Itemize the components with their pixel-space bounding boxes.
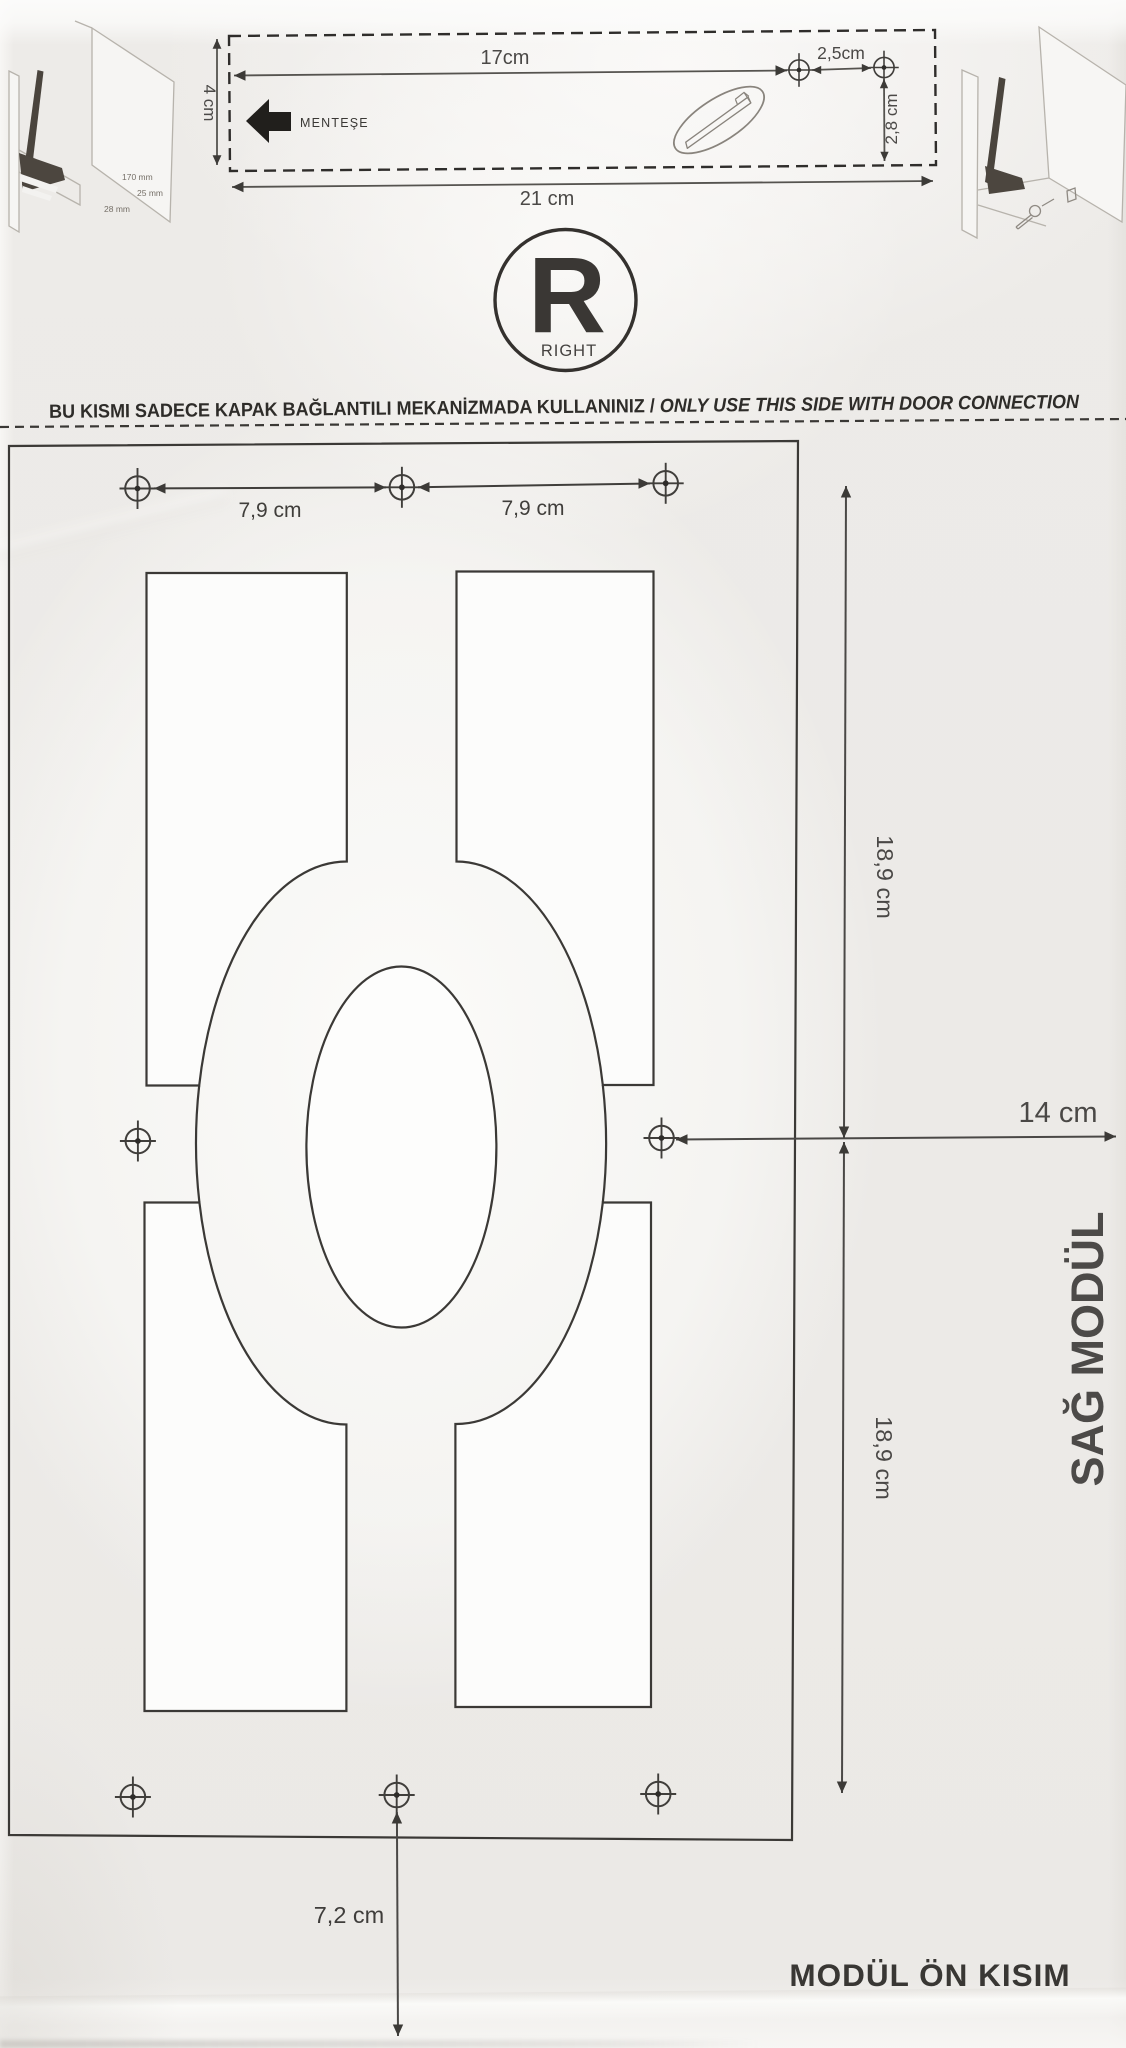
svg-text:4 cm: 4 cm bbox=[200, 85, 219, 122]
svg-text:2,5cm: 2,5cm bbox=[817, 43, 865, 63]
svg-text:14 cm: 14 cm bbox=[1019, 1097, 1098, 1129]
svg-text:7,2 cm: 7,2 cm bbox=[314, 1902, 385, 1928]
svg-text:BU KISMI SADECE KAPAK BAĞLANTI: BU KISMI SADECE KAPAK BAĞLANTILI MEKANİZ… bbox=[49, 391, 1080, 423]
svg-text:MODÜL ÖN KISIM: MODÜL ÖN KISIM bbox=[789, 1957, 1070, 1993]
svg-text:25 mm: 25 mm bbox=[137, 188, 163, 198]
svg-text:18,9 cm: 18,9 cm bbox=[871, 1416, 897, 1500]
svg-text:SAĞ MODÜL: SAĞ MODÜL bbox=[1062, 1212, 1113, 1487]
svg-text:7,9 cm: 7,9 cm bbox=[238, 499, 301, 522]
svg-text:18,9 cm: 18,9 cm bbox=[872, 835, 898, 919]
svg-text:17cm: 17cm bbox=[481, 47, 530, 69]
svg-text:7,9 cm: 7,9 cm bbox=[501, 497, 564, 520]
svg-text:MENTEŞE: MENTEŞE bbox=[300, 116, 369, 130]
svg-text:R: R bbox=[528, 234, 606, 355]
svg-text:28 mm: 28 mm bbox=[104, 204, 130, 214]
svg-text:RIGHT: RIGHT bbox=[541, 342, 597, 360]
svg-text:170 mm: 170 mm bbox=[122, 172, 153, 182]
svg-text:2,8 cm: 2,8 cm bbox=[882, 93, 901, 144]
svg-text:21 cm: 21 cm bbox=[520, 188, 574, 210]
